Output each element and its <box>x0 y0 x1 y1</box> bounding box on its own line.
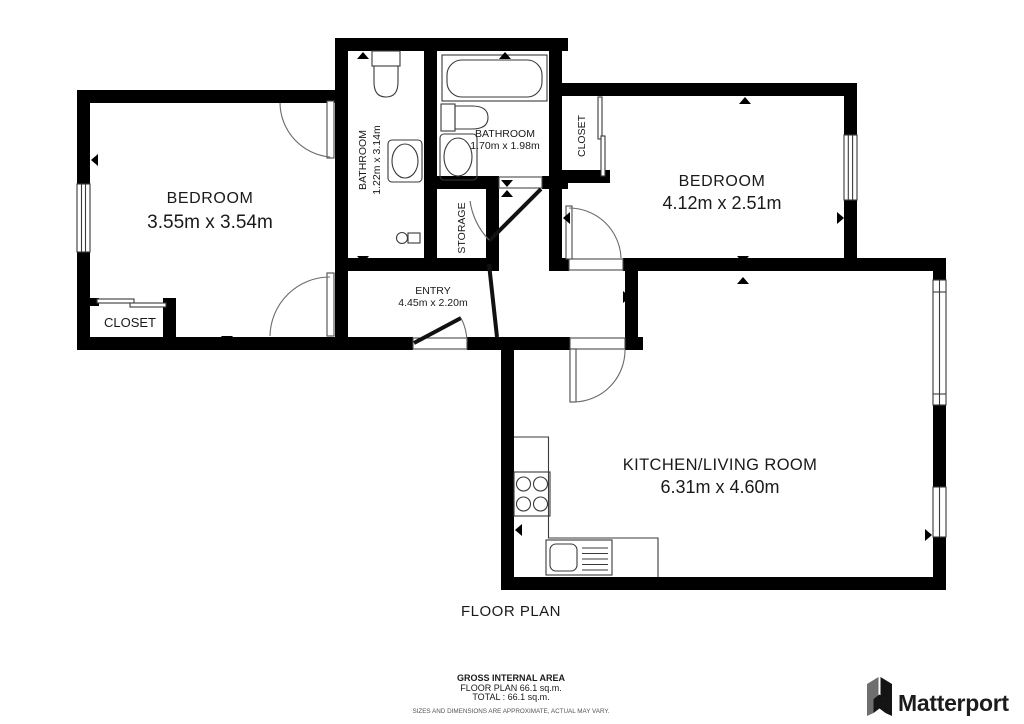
captions: FLOOR PLAN GROSS INTERNAL AREA FLOOR PLA… <box>412 603 609 715</box>
sink-icon <box>388 140 422 182</box>
measure-arrow <box>737 277 749 284</box>
door <box>270 273 334 336</box>
measure-arrow <box>739 97 751 104</box>
measure-arrow <box>515 524 522 536</box>
total-area: TOTAL : 66.1 sq.m. <box>472 692 549 702</box>
room-name-bedroom-right: BEDROOM <box>679 173 766 190</box>
walls <box>77 38 946 590</box>
wall <box>623 258 946 271</box>
wall <box>77 252 90 350</box>
door <box>280 101 334 158</box>
brand-logo: Matterport <box>867 677 1009 716</box>
wall <box>933 405 946 487</box>
room-name-closet-left: CLOSET <box>104 315 156 330</box>
wall <box>625 271 638 344</box>
disclaimer: SIZES AND DIMENSIONS ARE APPROXIMATE, AC… <box>412 708 609 715</box>
room-name-closet-top: CLOSET <box>576 114 588 157</box>
stove-icon <box>514 472 550 516</box>
wall <box>933 271 946 280</box>
wall <box>77 337 413 350</box>
sliding-door <box>97 299 166 307</box>
wall <box>77 90 348 103</box>
wall <box>335 258 499 271</box>
measure-arrow <box>925 529 932 541</box>
toilet-icon <box>372 51 400 97</box>
front-door <box>413 318 467 349</box>
wall <box>549 83 856 96</box>
wall <box>335 38 568 51</box>
measure-arrow <box>357 52 369 59</box>
room-dims-kitchen: 6.31m x 4.60m <box>660 477 779 497</box>
measure-arrow <box>837 212 844 224</box>
gross-area-label: GROSS INTERNAL AREA <box>457 673 566 683</box>
wall <box>467 337 570 350</box>
window <box>933 280 946 405</box>
door <box>570 338 625 402</box>
matterport-wordmark: Matterport <box>898 690 1009 716</box>
wall <box>844 200 857 271</box>
matterport-logo-icon <box>867 677 892 716</box>
window <box>844 135 857 200</box>
window <box>77 184 90 252</box>
room-dims-entry: 4.45m x 2.20m <box>398 297 468 309</box>
room-labels: BEDROOM 3.55m x 3.54m CLOSET BATHROOM 1.… <box>104 114 817 497</box>
wall <box>844 83 857 135</box>
toilet-icon <box>441 104 488 131</box>
room-dims-bathroom-top: 1.70m x 1.98m <box>470 140 540 152</box>
room-name-storage: STORAGE <box>456 202 468 253</box>
wall <box>335 38 348 158</box>
measure-arrow <box>501 190 513 197</box>
floor-plan-canvas: BEDROOM 3.55m x 3.54m CLOSET BATHROOM 1.… <box>0 0 1024 724</box>
room-name-entry: ENTRY <box>415 285 450 297</box>
kitchen-sink-icon <box>546 540 612 575</box>
bathtub-icon <box>442 55 547 101</box>
room-name-bathroom-top: BATHROOM <box>475 128 535 140</box>
door <box>566 206 623 270</box>
wall <box>549 38 562 271</box>
door <box>489 264 497 337</box>
room-name-kitchen: KITCHEN/LIVING ROOM <box>623 456 818 474</box>
wall <box>933 537 946 590</box>
room-dims-bedroom-left: 3.55m x 3.54m <box>147 212 273 233</box>
plan-title: FLOOR PLAN <box>461 603 561 620</box>
wall <box>424 38 437 271</box>
sliding-door <box>598 97 605 176</box>
room-name-bathroom-mid: BATHROOM <box>357 130 369 190</box>
window <box>933 487 946 537</box>
wall <box>486 189 499 271</box>
room-name-bedroom-left: BEDROOM <box>167 190 254 207</box>
wall <box>501 337 514 590</box>
measure-arrow <box>91 154 98 166</box>
room-dims-bedroom-right: 4.12m x 2.51m <box>662 193 781 213</box>
room-dims-bathroom-mid: 1.22m x 3.14m <box>371 125 383 195</box>
wall <box>501 577 946 590</box>
wall <box>335 158 348 350</box>
radiator-icon <box>397 233 421 244</box>
wall <box>77 90 90 185</box>
